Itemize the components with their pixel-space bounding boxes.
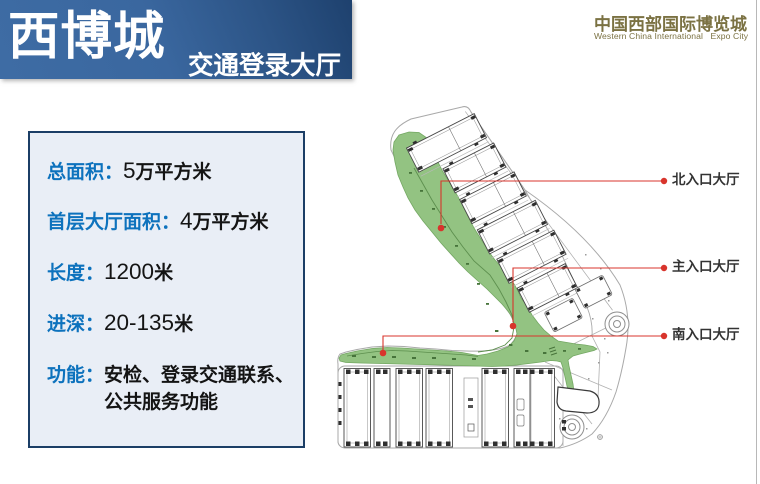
svg-text:南入口大厅: 南入口大厅	[672, 326, 740, 342]
svg-text:北入口大厅: 北入口大厅	[672, 171, 740, 187]
svg-text:主入口大厅: 主入口大厅	[672, 258, 740, 274]
